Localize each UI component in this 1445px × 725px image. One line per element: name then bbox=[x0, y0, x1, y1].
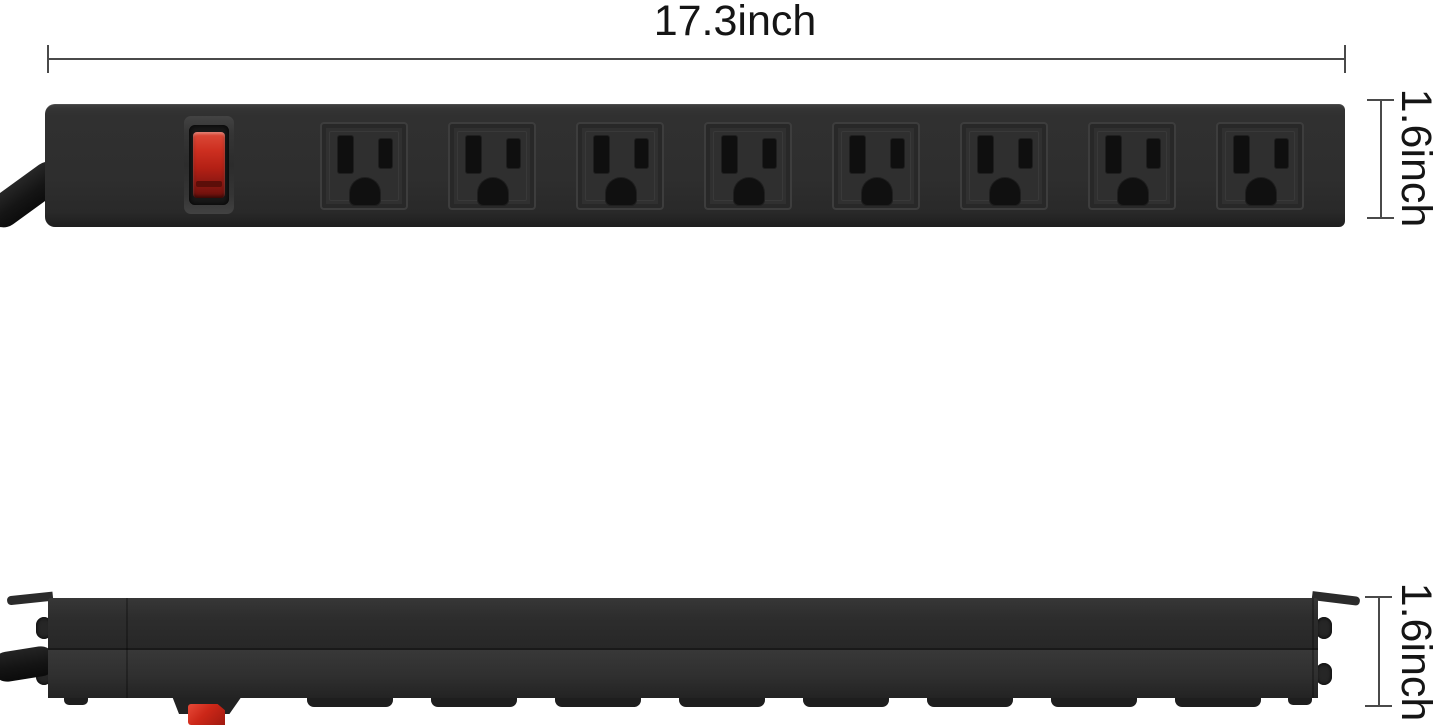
end-cap-seam-left bbox=[126, 598, 128, 698]
power-switch bbox=[184, 116, 234, 214]
outlet-ground-hole bbox=[1118, 178, 1148, 205]
outlet-neutral-slot bbox=[978, 136, 993, 173]
outlet-hot-slot bbox=[1275, 139, 1288, 168]
side-height-tick-top bbox=[1365, 596, 1392, 598]
width-dimension-line bbox=[48, 58, 1345, 60]
outlet bbox=[448, 122, 536, 210]
outlet-hot-slot bbox=[1019, 139, 1032, 168]
outlet bbox=[1216, 122, 1304, 210]
end-cap-seam-right bbox=[1312, 598, 1314, 698]
side-upper-housing bbox=[48, 598, 1318, 648]
outlet bbox=[960, 122, 1048, 210]
power-strip-side-view bbox=[48, 598, 1318, 698]
front-height-tick-top bbox=[1367, 99, 1394, 101]
power-strip-front-view bbox=[45, 104, 1345, 227]
outlet bbox=[320, 122, 408, 210]
outlet-neutral-slot bbox=[1106, 136, 1121, 173]
outlet-ground-hole bbox=[350, 178, 380, 205]
outlet-neutral-slot bbox=[850, 136, 865, 173]
outlet-neutral-slot bbox=[722, 136, 737, 173]
width-dimension-tick-right bbox=[1344, 45, 1346, 73]
outlet-hot-slot bbox=[507, 139, 520, 168]
power-switch-marking bbox=[196, 181, 222, 187]
width-dimension-label: 17.3inch bbox=[540, 0, 930, 44]
outlet-ground-hole bbox=[862, 178, 892, 205]
outlet bbox=[704, 122, 792, 210]
outlet-ground-hole bbox=[1246, 178, 1276, 205]
front-height-dimension-line bbox=[1380, 100, 1382, 218]
side-height-dimension-label: 1.6inch bbox=[1393, 583, 1439, 722]
side-lower-housing bbox=[48, 650, 1318, 698]
outlet-hot-slot bbox=[1147, 139, 1160, 168]
outlet bbox=[576, 122, 664, 210]
product-dimension-image: 17.3inch bbox=[0, 0, 1445, 725]
outlet-ground-hole bbox=[734, 178, 764, 205]
side-height-tick-bottom bbox=[1365, 705, 1392, 707]
front-height-dimension-label: 1.6inch bbox=[1393, 89, 1439, 228]
outlet bbox=[832, 122, 920, 210]
power-switch-rocker bbox=[193, 132, 225, 198]
outlet-neutral-slot bbox=[466, 136, 481, 173]
power-switch-recess bbox=[189, 125, 229, 205]
screw-boss-right-top bbox=[1316, 617, 1332, 639]
outlet-neutral-slot bbox=[338, 136, 353, 173]
side-height-dimension-line bbox=[1378, 597, 1380, 707]
side-switch-nub bbox=[188, 704, 225, 725]
outlet bbox=[1088, 122, 1176, 210]
width-dimension-tick-left bbox=[47, 45, 49, 73]
outlet-neutral-slot bbox=[594, 136, 609, 173]
mounting-bracket-left bbox=[7, 592, 54, 606]
front-height-tick-bottom bbox=[1367, 217, 1394, 219]
outlet-neutral-slot bbox=[1234, 136, 1249, 173]
outlet-ground-hole bbox=[990, 178, 1020, 205]
outlet-hot-slot bbox=[891, 139, 904, 168]
screw-boss-right-bottom bbox=[1316, 663, 1332, 685]
outlet-hot-slot bbox=[763, 139, 776, 168]
mounting-bracket-right bbox=[1312, 591, 1361, 606]
outlet-ground-hole bbox=[606, 178, 636, 205]
outlet-ground-hole bbox=[478, 178, 508, 205]
outlet-hot-slot bbox=[635, 139, 648, 168]
outlet-hot-slot bbox=[379, 139, 392, 168]
